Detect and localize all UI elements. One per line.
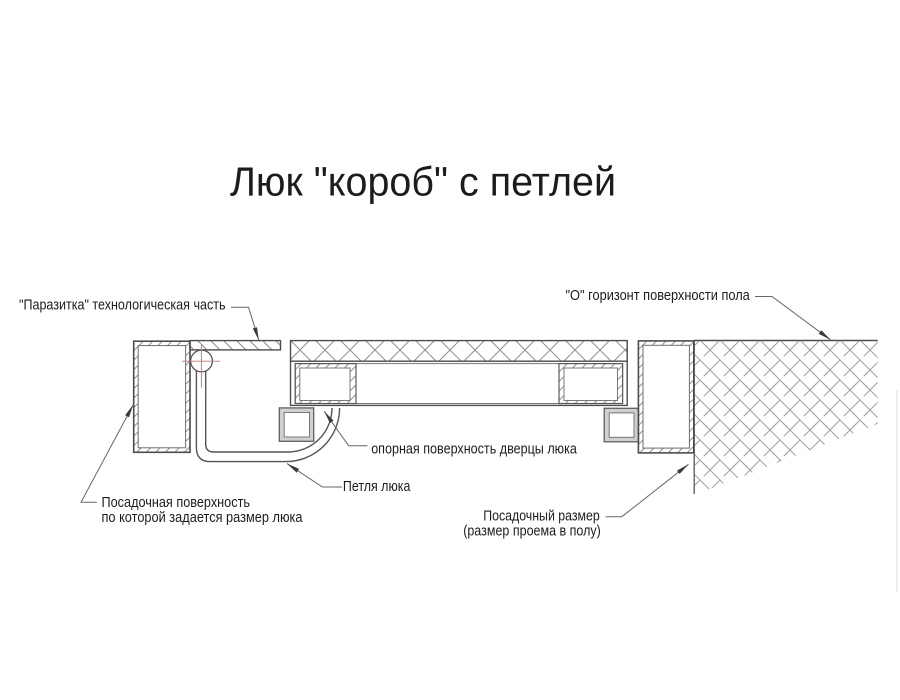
svg-text:Петля люка: Петля люка (343, 478, 411, 495)
svg-text:"О" горизонт поверхности пола: "О" горизонт поверхности пола (566, 287, 751, 304)
svg-text:опорная поверхность дверцы люк: опорная поверхность дверцы люка (371, 441, 577, 458)
svg-text:(размер проема в полу): (размер проема в полу) (463, 522, 601, 539)
svg-text:"Паразитка" технологическая ча: "Паразитка" технологическая часть (19, 297, 226, 314)
svg-text:Люк "короб" с петлей: Люк "короб" с петлей (230, 159, 616, 205)
svg-text:по которой задается размер люк: по которой задается размер люка (102, 509, 304, 526)
